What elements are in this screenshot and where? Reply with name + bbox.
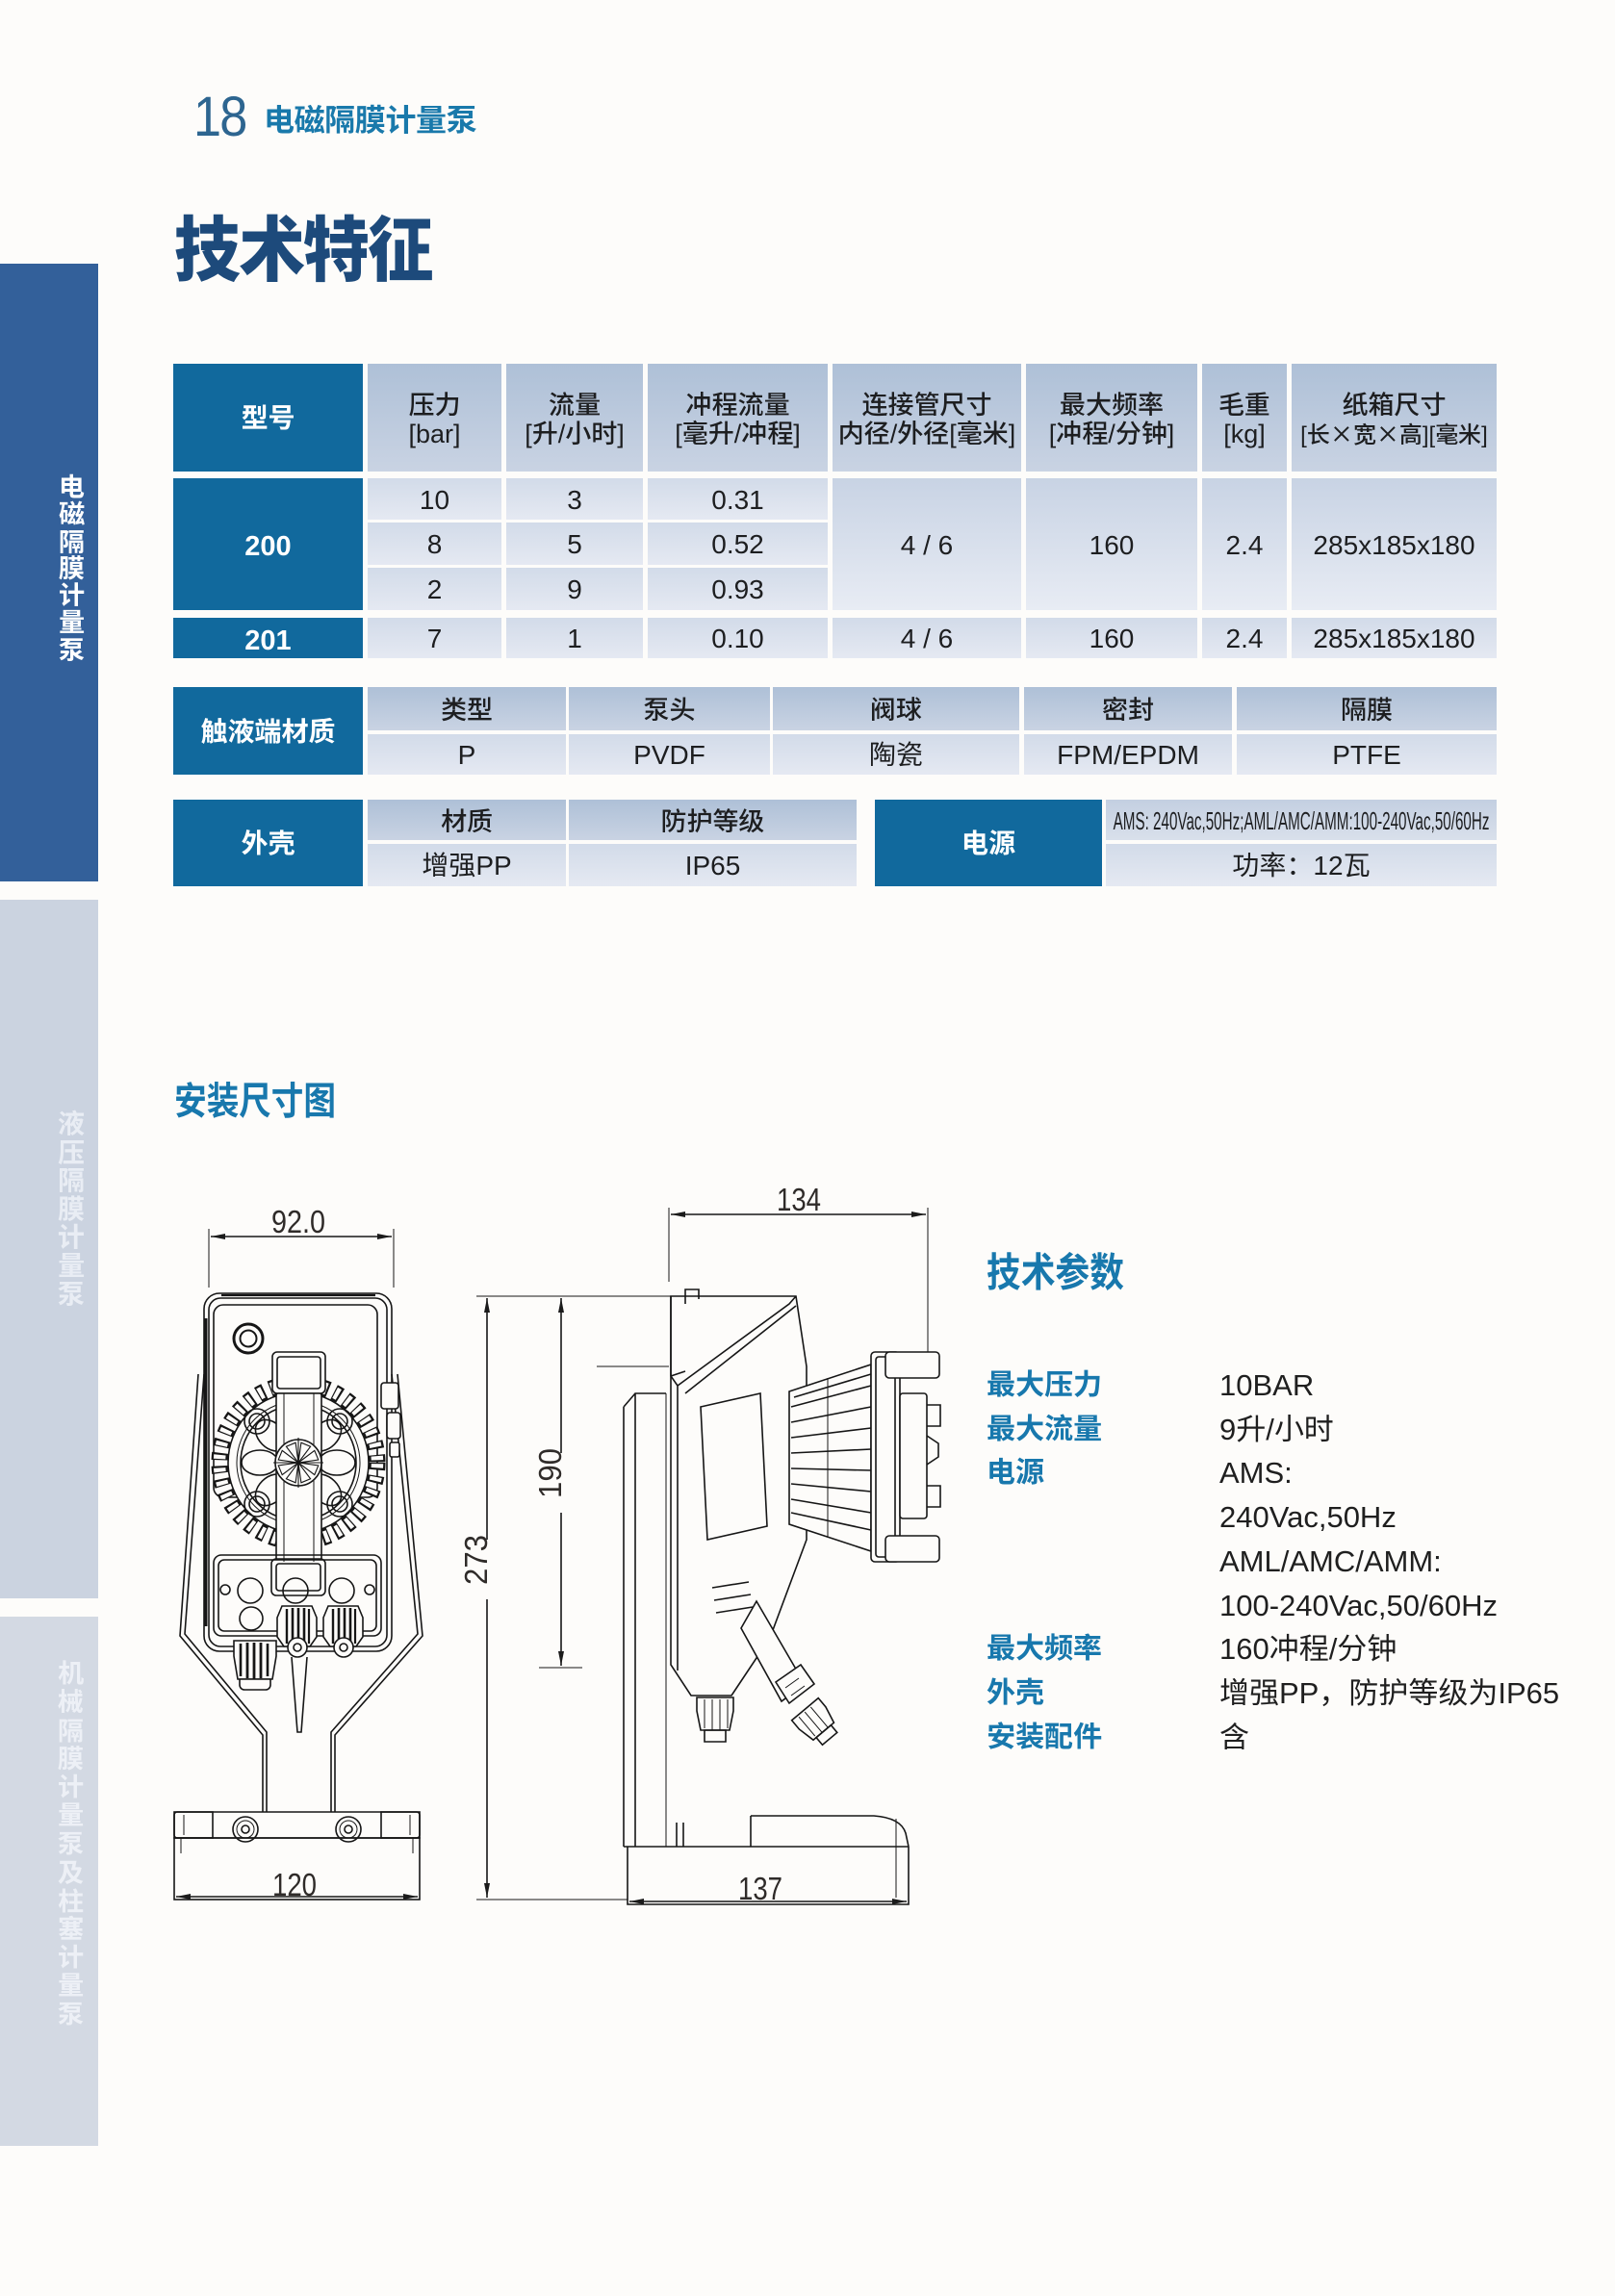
svg-text:273: 273 [458,1535,494,1585]
svg-text:120: 120 [272,1867,317,1902]
svg-text:134: 134 [777,1182,821,1217]
svg-text:190: 190 [532,1448,568,1498]
svg-text:137: 137 [738,1871,782,1906]
svg-text:92.0: 92.0 [271,1204,325,1239]
